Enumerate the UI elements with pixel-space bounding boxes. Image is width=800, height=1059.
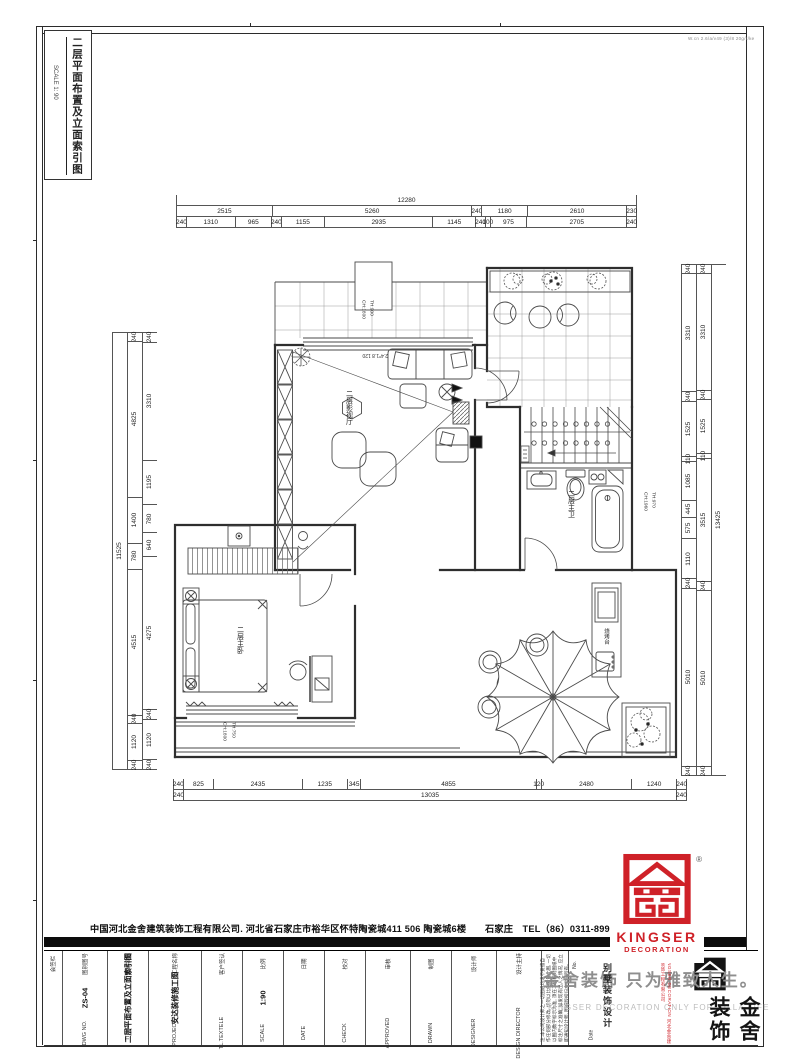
drawing-sheet: { "sheet": { "side_tab": {"title": "二层平面… <box>0 0 800 1052</box>
title-block-column: 制图 DRAWN <box>411 951 452 1045</box>
staircase <box>521 407 632 463</box>
title-block-field-sublabel: SCALE <box>260 1024 266 1042</box>
title-block-field-header: 审核 <box>384 958 392 969</box>
title-block-field-header: 客户签认 <box>218 953 226 975</box>
note-window-size: 2.4*1.8 120 <box>362 352 388 358</box>
planter-plants-top <box>504 272 606 290</box>
label-bedroom: 二层主卧 <box>237 626 245 655</box>
date-label: Date <box>588 1030 594 1041</box>
title-block-field-sublabel: DRAWN <box>428 1023 434 1044</box>
title-block-field-header: 设计主持 <box>515 953 523 975</box>
brand-vertical-text: KINGSER DECORATION 河北金舍建筑装饰工程有限公司 <box>660 957 672 1045</box>
title-block-field-header: 图别图号 <box>81 953 89 975</box>
title-block-column: 客户签认 TL.TEXTELE <box>202 951 243 1045</box>
parasol-umbrella <box>487 631 619 763</box>
title-block-column: 设计师 DESIGNER <box>452 951 497 1045</box>
title-block-column: 图纸名称 二层平面布置及立面索引图 TITLE <box>108 951 149 1045</box>
plant-media-corner <box>292 348 310 366</box>
label-bbq-counter: 烧烤台 <box>603 627 610 646</box>
label-media-room: 二层影视厅 <box>346 390 354 425</box>
title-block-column: 设计主持 DESIGN DIRECTOR <box>497 951 542 1045</box>
company-address-line: 中国河北金舍建筑装饰工程有限公司. 河北省石家庄市裕华区怀特陶瓷城411 506… <box>90 921 636 935</box>
title-block-field-value: 安达装修施工图 <box>170 972 181 1025</box>
jinshe-logo-characters: 金舍装饰 <box>703 996 763 1048</box>
title-block-field-sublabel: DWG NO. <box>82 1021 88 1046</box>
title-block-column: 日期 DATE <box>284 951 325 1045</box>
dimension-chain-bottom: 24082524351235345485512024801240240 2401… <box>173 779 687 801</box>
note-bedroom-ch: CH:1800 <box>222 722 228 741</box>
note-bath-ch: CH:1960 <box>643 492 649 511</box>
kingser-sub-text: DECORATION <box>610 945 704 954</box>
terrace-tile-grid <box>487 268 632 407</box>
title-block-columns: 会签栏 图别图号 ZS-04 DWG NO. 图纸名称 二层平面布置及立面索引图… <box>44 951 542 1045</box>
title-block-column: 会签栏 <box>44 951 63 1045</box>
title-block-field-header: 日期 <box>300 958 308 969</box>
title-block-field-header: 设计师 <box>470 956 478 973</box>
dimension-chain-left: 11525 2404825140078045152401120240 24033… <box>112 332 157 770</box>
title-block: 会签栏 图别图号 ZS-04 DWG NO. 图纸名称 二层平面布置及立面索引图… <box>44 950 758 1046</box>
note-bath-th: TH:970 <box>651 492 657 508</box>
bathroom-fixtures <box>527 470 623 552</box>
title-block-field-header: 制图 <box>427 958 435 969</box>
media-room-furniture <box>278 349 483 562</box>
title-block-field-header: 会签栏 <box>49 956 57 973</box>
title-block-field-value: 1:90 <box>259 990 268 1005</box>
title-block-column: 比例 1:90 SCALE <box>243 951 284 1045</box>
villa-design-vertical-text: 别墅装饰设计 <box>601 963 614 1045</box>
label-bathroom: 二层主卫 <box>568 490 576 518</box>
note-bedroom-th: TH:750 <box>231 722 237 738</box>
title-block-field-sublabel: DESIGN DIRECTOR <box>516 1007 522 1058</box>
bedroom-furniture <box>183 526 332 702</box>
dimension-chain-top: 12280 2515526024011802610230 24013109652… <box>176 195 637 228</box>
title-block-field-header: 比例 <box>259 958 267 969</box>
title-block-field-sublabel: TITLE <box>125 1026 131 1041</box>
title-block-field-header: 校对 <box>341 958 349 969</box>
planter-plants-bottom <box>627 708 660 747</box>
title-block-field-sublabel: TL.TEXTELE <box>219 1017 225 1049</box>
title-block-column: 校对 CHECK <box>325 951 366 1045</box>
registered-mark-icon: ® <box>696 855 702 864</box>
dimension-chain-right: 2403310240152511010854455751110240501024… <box>681 264 726 776</box>
title-block-field-sublabel: DESIGNER <box>471 1019 477 1048</box>
watermark-slogan-cn: 金舍装饰 只为雅致人生。 <box>543 966 759 991</box>
kingser-logo-icon <box>623 853 691 925</box>
title-block-column: 工程名称 安达装修施工图 PROJECT <box>149 951 202 1045</box>
kingser-logo: ® KINGSER DECORATION <box>610 851 704 963</box>
kingser-brand-text: KINGSER <box>610 930 704 945</box>
title-block-field-sublabel: DATE <box>301 1026 307 1040</box>
title-block-column: 图别图号 ZS-04 DWG NO. <box>63 951 108 1045</box>
no-label: No. <box>572 961 578 969</box>
title-block-column: 审核 APPROVED <box>366 951 411 1045</box>
title-block-field-sublabel: APPROVED <box>385 1018 391 1049</box>
title-block-field-value: ZS-04 <box>81 988 90 1008</box>
title-block-field-sublabel: CHECK <box>342 1023 348 1042</box>
title-block-field-sublabel: PROJECT <box>172 1020 178 1046</box>
lower-terrace-furniture <box>478 583 670 763</box>
